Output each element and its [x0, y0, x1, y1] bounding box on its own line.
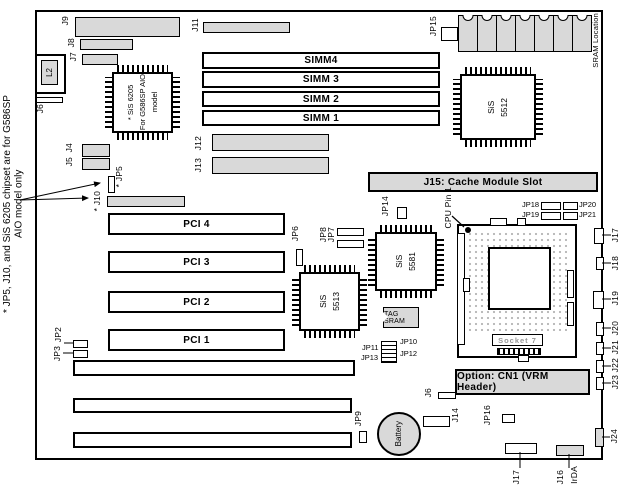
sram-chip [534, 15, 554, 52]
connector-jp15 [441, 27, 458, 41]
vrm-header-label: Option: CN1 (VRM Header) [457, 371, 588, 393]
connector-j22 [596, 360, 604, 373]
label-sram-location: SRAM Location [592, 13, 600, 68]
chip-sis6205-line3: model [149, 74, 161, 130]
label-j24: J24 [610, 429, 619, 443]
connector-j9 [75, 17, 180, 37]
socket7-label: Socket 7 [492, 334, 543, 346]
slot-simm1-label: SIMM 1 [303, 113, 339, 124]
connector-j23 [596, 377, 604, 390]
footnote-line2: AIO model only [14, 58, 26, 350]
connector-jp16 [502, 414, 515, 423]
socket7-inner [488, 247, 551, 310]
slot-pci3-label: PCI 3 [183, 257, 210, 268]
sram-chip [496, 15, 516, 52]
chip-pins [173, 77, 180, 128]
chip-pins [380, 291, 432, 298]
connector-j12 [212, 134, 329, 151]
chip-body: SiS 5581 [375, 232, 437, 291]
chip-sis5581-line2: 5581 [406, 252, 419, 271]
connector-j24 [595, 428, 604, 447]
label-jp11: JP11 [362, 344, 379, 352]
label-jp21: JP21 [579, 211, 596, 219]
label-j5: J5 [65, 157, 74, 166]
connector-j21 [596, 342, 604, 355]
footnote-line1: * JP5, J10, and SiS 6205 chipset are for… [2, 58, 14, 350]
motherboard-diagram: * JP5, J10, and SiS 6205 chipset are for… [0, 0, 626, 497]
connector-jp18 [541, 202, 561, 210]
label-j13: J13 [194, 158, 203, 172]
label-jp18: JP18 [522, 201, 539, 209]
chip-pins [292, 277, 299, 326]
label-cpu-pin1: CPU Pin 1 [444, 187, 453, 228]
label-j18: J18 [611, 256, 620, 270]
connector-j13 [212, 157, 329, 174]
chip-pins [536, 79, 543, 135]
label-j4: J4 [65, 143, 74, 152]
chip-body: * SiS 6205 For G586SP AIO model [112, 72, 173, 133]
chip-pins [117, 65, 168, 72]
label-j23: J23 [611, 375, 620, 389]
connector-j18 [596, 257, 604, 270]
connector-jp19 [541, 212, 561, 220]
chip-pins [304, 331, 355, 338]
connector-j8 [80, 39, 133, 50]
slot-pci3: PCI 3 [108, 251, 285, 273]
chip-sis5512-line1: SiS [485, 98, 498, 117]
chip-tag-sram: TAG SRAM [383, 307, 419, 328]
socket7-tab [490, 218, 507, 226]
label-l2: L2 [44, 68, 56, 77]
slot-pci2: PCI 2 [108, 291, 285, 313]
jumper-block-jp10-13 [381, 341, 397, 363]
label-j17-right: J17 [611, 228, 620, 242]
slot-isa3 [73, 432, 352, 448]
label-j19: J19 [611, 291, 620, 305]
connector-jp8 [337, 228, 364, 236]
chip-pins [368, 237, 375, 286]
sram-chip [553, 15, 573, 52]
connector-j11 [203, 22, 290, 33]
label-j21: J21 [611, 340, 620, 354]
label-j12: J12 [194, 136, 203, 150]
slot-simm1: SIMM 1 [202, 110, 440, 126]
socket7-tab [517, 218, 526, 226]
connector-jp14 [397, 207, 407, 219]
chip-pins [105, 77, 112, 128]
socket7-side-bar [567, 302, 574, 326]
chip-pins [304, 265, 355, 272]
label-jp9: JP9 [354, 411, 363, 426]
socket7: Socket 7 [457, 224, 577, 358]
label-j20: J20 [611, 321, 620, 335]
sram-chip [515, 15, 535, 52]
connector-j7 [82, 54, 118, 65]
slot-simm3: SIMM 3 [202, 71, 440, 88]
label-j11: J11 [191, 18, 200, 32]
chip-sis5581: SiS 5581 [368, 225, 444, 298]
chip-pins [380, 225, 432, 232]
label-jp13: JP13 [361, 354, 378, 362]
chip-sis5513: SiS 5513 [292, 265, 367, 338]
connector-j17-right [594, 228, 604, 244]
connector-j20 [596, 322, 604, 336]
label-jp6: JP6 [291, 226, 300, 241]
slot-simm3-label: SIMM 3 [303, 74, 339, 85]
slot-simm4: SIMM4 [202, 52, 440, 69]
slot-pci4-label: PCI 4 [183, 219, 210, 230]
label-j17-bottom: J17 [512, 470, 521, 484]
label-jp5: * JP5 [115, 166, 124, 187]
sram-location-row [458, 15, 592, 52]
label-jp3: JP3 [53, 346, 62, 361]
sram-chip [477, 15, 497, 52]
socket7-side-bar [567, 270, 574, 298]
slot-pci1-label: PCI 1 [183, 335, 210, 346]
chip-pins [360, 277, 367, 326]
label-jp10: JP10 [400, 338, 417, 346]
connector-j16 [556, 445, 584, 456]
connector-jp9 [359, 431, 367, 443]
connector-j14 [423, 416, 450, 427]
label-j14: J14 [451, 408, 460, 422]
label-j10: * J10 [93, 191, 102, 211]
chip-sis6205: * SiS 6205 For G586SP AIO model [105, 65, 180, 140]
label-jp12: JP12 [400, 350, 417, 358]
connector-j17-bottom [505, 443, 537, 454]
chip-sis5513-line1: SiS [317, 292, 330, 311]
socket7-teeth [497, 348, 541, 355]
chip-pins [453, 79, 460, 135]
slot-isa1 [73, 360, 355, 376]
chip-sis6205-line1: * SiS 6205 [125, 74, 137, 130]
connector-j19 [593, 291, 604, 309]
slot-pci1: PCI 1 [108, 329, 285, 351]
slot-simm2-label: SIMM 2 [303, 94, 339, 105]
chip-body: SiS 5512 [460, 74, 536, 140]
connector-j6-mid [438, 392, 456, 399]
label-irda: IrDA [570, 466, 579, 484]
footnote: * JP5, J10, and SiS 6205 chipset are for… [2, 58, 25, 350]
label-j22: J22 [611, 358, 620, 372]
connector-j4 [82, 144, 110, 157]
chip-sis6205-line2: For G586SP AIO [137, 74, 149, 130]
chip-sis5513-line2: 5513 [330, 292, 343, 311]
slot-pci4: PCI 4 [108, 213, 285, 235]
l2-socket: L2 [35, 54, 66, 94]
label-j6-top: J6 [36, 104, 45, 113]
slot-simm2: SIMM 2 [202, 91, 440, 107]
slot-pci2-label: PCI 2 [183, 297, 210, 308]
slot-simm4-label: SIMM4 [304, 55, 337, 66]
chip-pins [117, 133, 168, 140]
chip-sis5512-line2: 5512 [498, 98, 511, 117]
connector-j10 [107, 196, 185, 207]
sram-chip [458, 15, 478, 52]
chip-pins [465, 140, 531, 147]
label-j9: J9 [61, 16, 70, 25]
label-jp14: JP14 [381, 196, 390, 216]
label-jp20: JP20 [579, 201, 596, 209]
connector-jp6 [296, 249, 303, 266]
connector-jp20 [563, 202, 578, 210]
label-jp16: JP16 [483, 405, 492, 425]
battery-label: Battery [393, 421, 405, 446]
socket7-lever-tab [463, 278, 470, 292]
connector-jp7 [337, 240, 364, 248]
connector-j5 [82, 158, 110, 170]
label-jp2: JP2 [54, 327, 63, 342]
socket7-bottom-tab [518, 355, 529, 362]
battery: Battery [377, 412, 421, 456]
label-j6-mid: J6 [424, 388, 433, 397]
connector-jp2 [73, 340, 88, 348]
connector-jp21 [563, 212, 578, 220]
connector-jp3 [73, 350, 88, 358]
chip-sis5512: SiS 5512 [453, 67, 543, 147]
chip-pins [465, 67, 531, 74]
label-j7: J7 [69, 52, 78, 61]
label-jp7: JP7 [327, 227, 336, 242]
vrm-header-box: Option: CN1 (VRM Header) [455, 369, 590, 395]
slot-cache-module: J15: Cache Module Slot [368, 172, 598, 192]
chip-pins [437, 237, 444, 286]
slot-isa2 [73, 398, 352, 413]
l2-chip: L2 [41, 60, 58, 85]
label-j16: J16 [556, 470, 565, 484]
sram-chip [572, 15, 592, 52]
connector-j6-top [36, 97, 63, 103]
chip-sis5581-line1: SiS [393, 252, 406, 271]
label-j8: J8 [67, 38, 76, 47]
chip-body: SiS 5513 [299, 272, 360, 331]
slot-cache-label: J15: Cache Module Slot [424, 177, 543, 188]
label-jp15: JP15 [429, 16, 438, 36]
